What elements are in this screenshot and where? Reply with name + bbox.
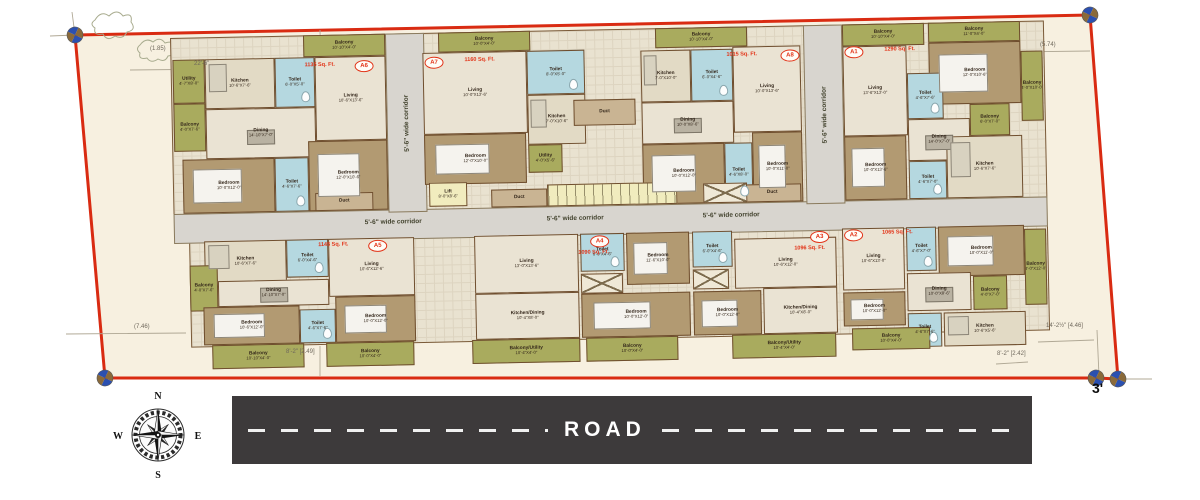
- corridor-label: 5'-6" wide corridor: [402, 94, 410, 151]
- room-bedroom: Bedroom10'-0"X13'-6": [844, 135, 907, 200]
- corridor-label: 5'-6" wide corridor: [820, 86, 828, 143]
- room-toilet: Toilet4'-6"X7'-6": [274, 157, 309, 212]
- room-dining: Dining14'-10"X7'-0": [205, 107, 316, 159]
- room-bedroom: Bedroom12'-0"X10'-0": [424, 133, 527, 185]
- room-kitchen: Kitchen10'-6"X5'-6": [944, 311, 1027, 347]
- corridor-vertical-right: 5'-6" wide corridor: [803, 25, 846, 205]
- unit-area-A1: 1290 Sq. Ft.: [884, 46, 915, 53]
- room-balcony: Balcony10'-0"X4'-0": [326, 341, 414, 367]
- road-strip: ROAD: [232, 396, 1032, 464]
- room-balcony: Balcony10'-10"X4'-0": [655, 26, 747, 48]
- room-bedroom: Bedroom10'-0"X12'-0": [335, 295, 416, 343]
- room-bedroom: Bedroom10'-0"X11'-0": [938, 225, 1025, 277]
- room-dining: Dining10'-0"X8'-6": [907, 272, 972, 311]
- road-center-dash-left: [248, 429, 548, 432]
- corridor-label: 5'-6" wide corridor: [547, 214, 604, 222]
- room-kitchen: Kitchen10'-6"X7'-6": [946, 135, 1023, 199]
- room-living: Living13'-0"X13'-6": [474, 234, 579, 294]
- room-toilet: Toilet6'-0"X4'-6": [692, 231, 733, 268]
- room-toilet: Toilet8'-0"X5'-0": [526, 50, 585, 95]
- room-shaft: [581, 273, 623, 294]
- compass-south-label: S: [155, 470, 161, 480]
- unit-area-A2: 1065 Sq. Ft.: [882, 229, 913, 236]
- room-balcony: Balcony10'-0"X4'-0": [586, 336, 678, 362]
- room-bedroom: Bedroom10'-0"X12'-0": [843, 291, 906, 326]
- building-floor-plan: 5'-6" wide corridor 5'-6" wide corridor …: [170, 20, 1049, 373]
- room-bedroom: Bedroom10'-0"X12'-0": [581, 292, 691, 338]
- room-kitchen: Kitchen7'-0"X10'-0": [640, 50, 691, 103]
- site-plan-canvas: 5'-6" wide corridor 5'-6" wide corridor …: [0, 0, 1200, 500]
- road-label: ROAD: [564, 418, 646, 442]
- room-kitchen: Kitchen10'-6"X7'-6": [204, 58, 275, 109]
- compass-west-label: W: [113, 431, 123, 442]
- room-utility: Utility4'-7"X8'-0": [172, 59, 205, 104]
- room-bedroom: Bedroom11'-6"X10'-0": [626, 232, 690, 285]
- unit-area-A3: 1096 Sq. Ft.: [794, 245, 825, 252]
- unit-area-A5: 1145 Sq. Ft.: [318, 241, 348, 248]
- room-balcony: Balcony10'-10"X4'-0": [303, 34, 385, 58]
- unit-area-A6: 1135 Sq. Ft.: [305, 62, 335, 69]
- room-balcony: Balcony10'-10"X4'-0": [212, 343, 304, 369]
- road-center-dash-right: [662, 429, 1018, 432]
- room-balcony: Balcony4'-0"X7'-6": [190, 265, 219, 312]
- room-toilet: Toilet4'-6"X7'-6": [299, 309, 336, 344]
- unit-area-A8: 1015 Sq. Ft.: [726, 51, 757, 58]
- room-balcony: Balcony10'-10"X4'-0": [842, 23, 924, 47]
- room-kitchen-dining: Kitchen/Dining10'-4"X8'-0": [475, 292, 580, 340]
- room-bedroom: Bedroom10'-0"X12'-0": [693, 290, 762, 335]
- room-bedroom: Bedroom10'-6"X12'-0": [203, 305, 300, 345]
- room-balcony-utility: Balcony/Utility10'-4"X4'-0": [732, 333, 836, 359]
- room-toilet: Toilet4'-6"X7'-0": [909, 160, 948, 199]
- compass-north-label: N: [154, 391, 162, 402]
- room-kitchen-dining: Kitchen/Dining10'-4"X8'-0": [763, 287, 838, 334]
- room-balcony: Balcony4'-0"X7'-0": [973, 275, 1008, 310]
- room-lift: Lift8'-0"X8'-6": [429, 182, 467, 207]
- room-shaft: [693, 269, 729, 290]
- unit-area-A7: 1160 Sq. Ft.: [464, 56, 494, 63]
- room-dining: Dining10'-0"X8'-6": [641, 101, 734, 145]
- corridor-label: 5'-6" wide corridor: [703, 211, 760, 219]
- room-bedroom: Bedroom10'-0"X12'-0": [182, 158, 275, 214]
- room-balcony: Balcony10'-0"X4'-0": [438, 31, 530, 53]
- room-balcony: Balcony4'-0"X7'-6": [173, 103, 206, 152]
- room-living: Living13'-6"X13'-0": [842, 45, 908, 136]
- room-duct: Duct: [491, 188, 547, 207]
- room-duct: Duct: [573, 99, 636, 126]
- room-balcony: Balcony11'-0"X4'-0": [928, 21, 1020, 43]
- compass-rose: N S W E: [112, 388, 204, 480]
- unit-area-A4: 1090 Sq. Ft.: [578, 249, 609, 256]
- compass-east-label: E: [195, 431, 202, 442]
- room-balcony: Balcony4'-0"X10'-0": [1020, 50, 1043, 120]
- room-utility: Utility4'-0"X5'-6": [528, 144, 563, 173]
- room-dining: Dining14'-10"X7'-0": [218, 279, 329, 307]
- room-balcony: Balcony4'-0"X12'-0": [1024, 228, 1048, 304]
- room-balcony: Balcony6'-0"X7'-0": [969, 103, 1010, 136]
- corridor-label: 5'-6" wide corridor: [365, 218, 422, 226]
- corridor-vertical-left: 5'-6" wide corridor: [385, 33, 428, 213]
- room-living: Living10'-6"X13'-6": [314, 56, 387, 141]
- room-balcony-utility: Balcony/Utility10'-4"X4'-0": [472, 338, 580, 364]
